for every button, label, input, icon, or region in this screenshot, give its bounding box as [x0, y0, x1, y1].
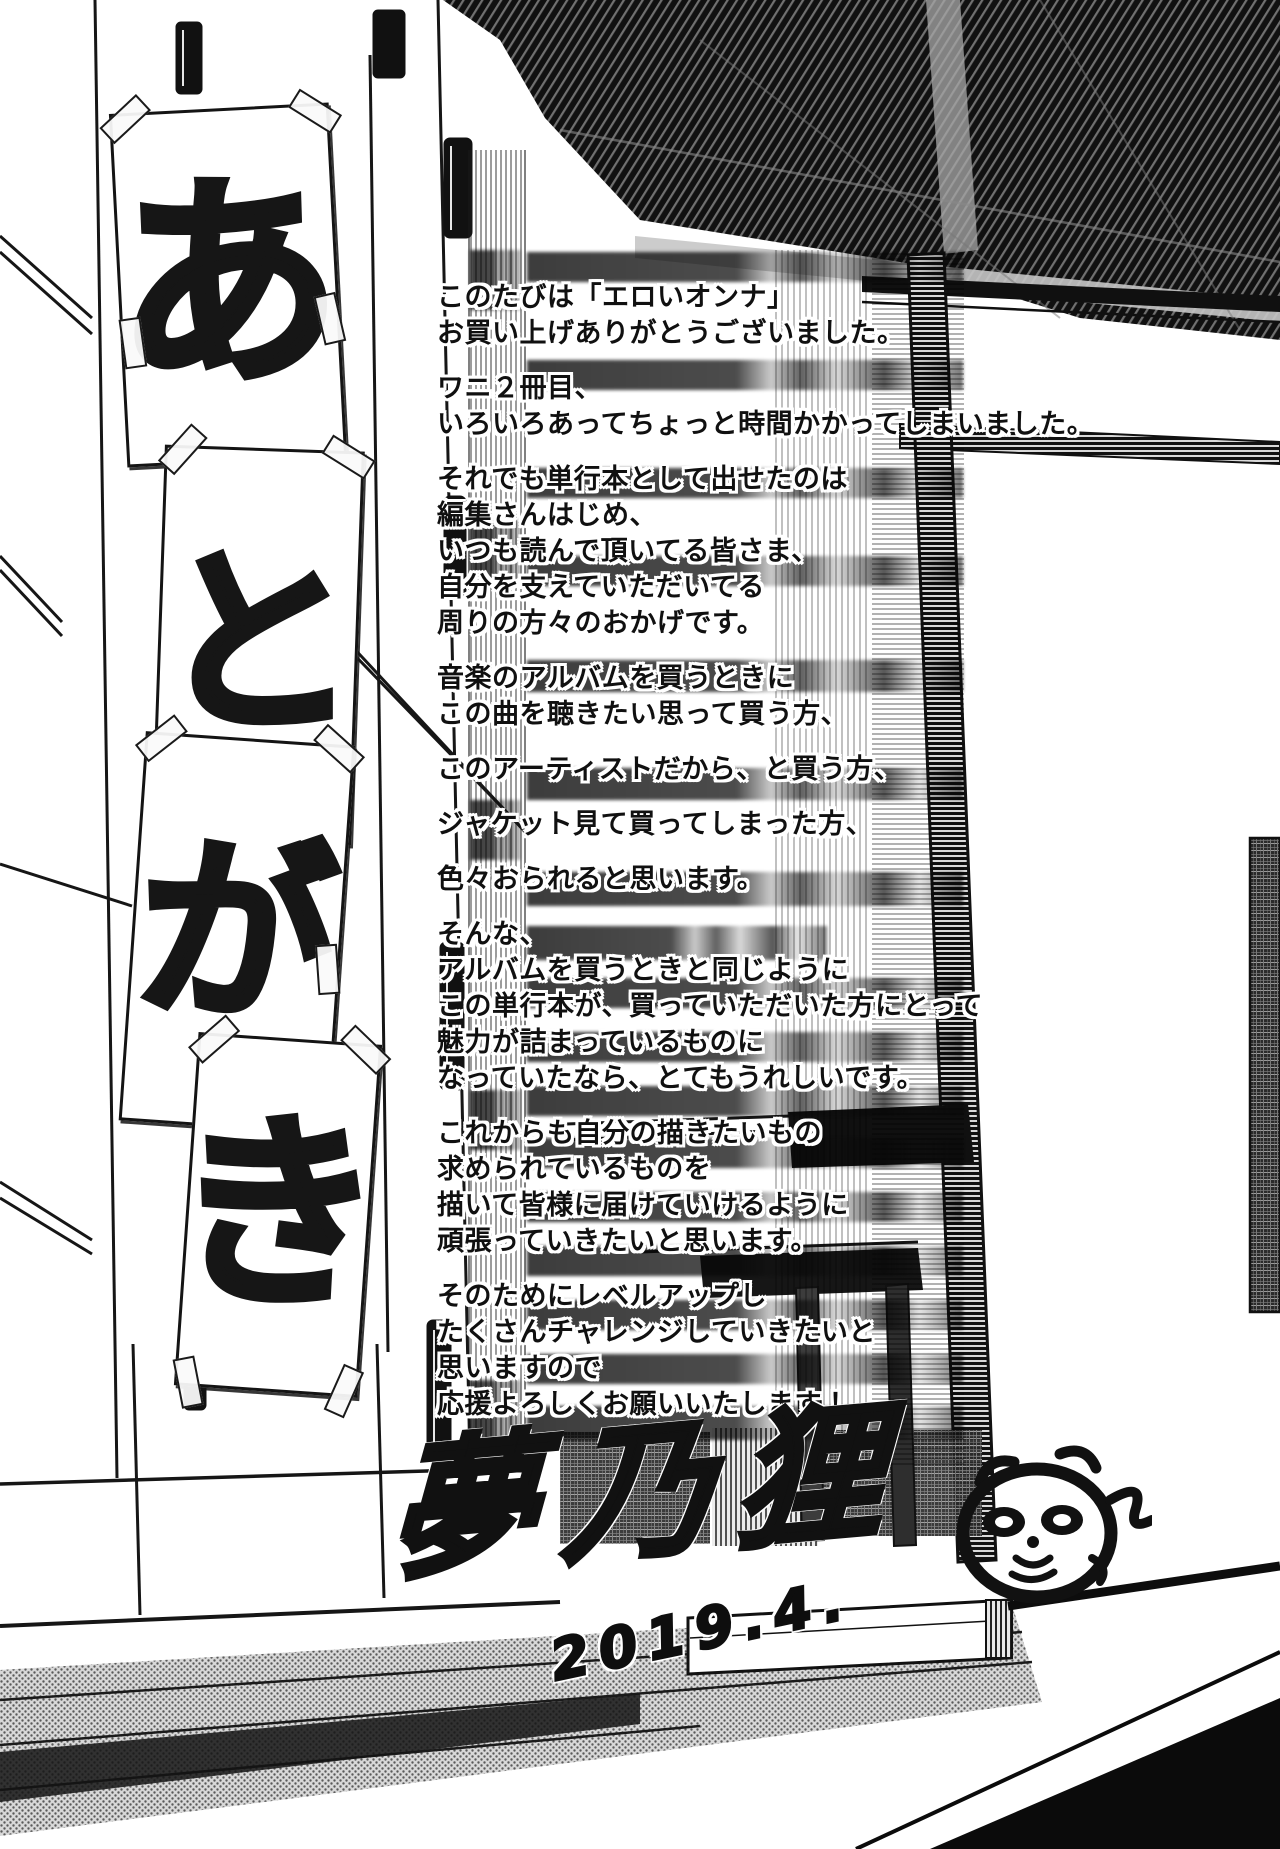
afterword-line: このたびは「エロいオンナ」: [437, 280, 1097, 316]
afterword-line: ジャケット見て買ってしまった方、: [437, 807, 1097, 843]
afterword-line: 求められているものを: [437, 1152, 1097, 1188]
tanuki-face-doodle: [942, 1438, 1152, 1618]
artist-signature: 夢乃狸: [386, 1395, 911, 1590]
afterword-line: このアーティストだから、と買う方、: [437, 752, 1097, 788]
afterword-line: いろいろあってちょっと時間かかってしまいました。: [437, 407, 1097, 443]
afterword-line: 描いて皆様に届けていけるように: [437, 1188, 1097, 1224]
afterword-sign-ki: き: [174, 1032, 382, 1398]
afterword-sign-a: あ: [109, 102, 347, 467]
afterword-line: これからも自分の描きたいもの: [437, 1116, 1097, 1152]
afterword-line: この曲を聴きたい思って買う方、: [437, 697, 1097, 733]
sign-character: と: [158, 545, 358, 745]
afterword-line: 編集さんはじめ、: [437, 498, 1097, 534]
afterword-line: それでも単行本として出せたのは: [437, 462, 1097, 498]
afterword-text: このたびは「エロいオンナ」 お買い上げありがとうございました。 ワニ２冊目、 い…: [437, 280, 1097, 1423]
afterword-line: なっていたなら、とてもうれしいです。: [437, 1061, 1097, 1097]
afterword-line: お買い上げありがとうございました。: [437, 316, 1097, 352]
afterword-line: 周りの方々のおかげです。: [437, 606, 1097, 642]
afterword-line: たくさんチャレンジしていきたいと: [437, 1315, 1097, 1351]
afterword-line: 色々おられると思います。: [437, 862, 1097, 898]
afterword-line: いつも読んで頂いてる皆さま、: [437, 534, 1097, 570]
afterword-line: アルバムを買うときと同じように: [437, 953, 1097, 989]
afterword-line: 魅力が詰まっているものに: [437, 1025, 1097, 1061]
sign-character: き: [172, 1109, 384, 1321]
tape-icon: [315, 944, 340, 995]
sign-character: が: [133, 829, 341, 1037]
afterword-line: そんな、: [437, 917, 1097, 953]
sign-character: あ: [114, 171, 343, 400]
afterword-line: そのためにレベルアップし: [437, 1279, 1097, 1315]
afterword-line: 頑張っていきたいと思います。: [437, 1224, 1097, 1260]
afterword-line: 自分を支えていただいてる: [437, 570, 1097, 606]
afterword-line: この単行本が、買っていただいた方にとって: [437, 989, 1097, 1025]
manga-afterword-page: あ と が き このたびは「エロいオンナ」 お買い上げありがとうございました。 …: [0, 0, 1280, 1849]
afterword-line: 音楽のアルバムを買うときに: [437, 661, 1097, 697]
afterword-line: 思いますので: [437, 1351, 1097, 1387]
afterword-line: ワニ２冊目、: [437, 371, 1097, 407]
